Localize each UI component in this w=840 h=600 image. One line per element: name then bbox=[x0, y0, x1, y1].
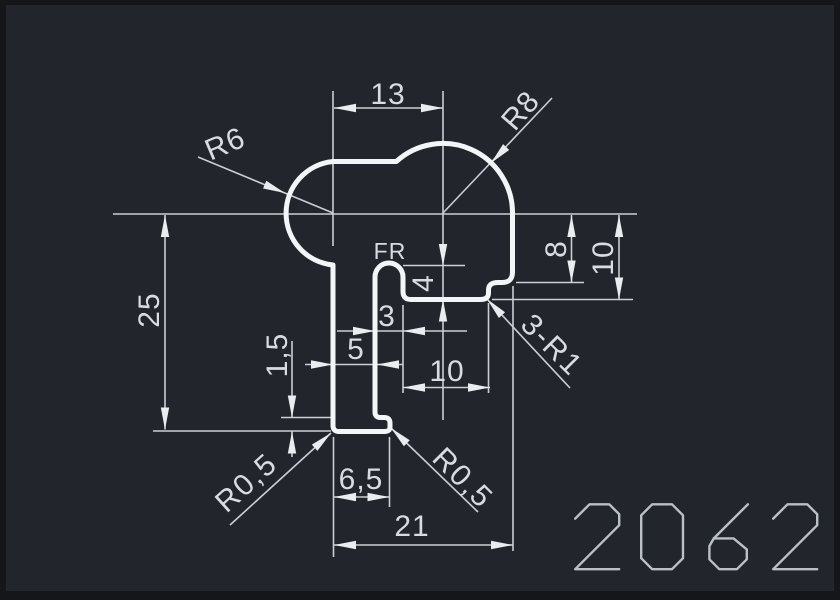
cad-viewport[interactable]: 13 R6 R8 4 3 5 10 bbox=[0, 0, 840, 600]
dim-label-21: 21 bbox=[394, 510, 429, 543]
dim-label-25: 25 bbox=[133, 292, 166, 327]
dim-label-10-notch: 10 bbox=[429, 355, 464, 388]
dim-label-13: 13 bbox=[370, 78, 405, 111]
dim-label-1-5: 1,5 bbox=[261, 333, 294, 378]
dim-label-4: 4 bbox=[407, 274, 440, 292]
dim-label-8: 8 bbox=[540, 240, 573, 258]
cad-drawing[interactable]: 13 R6 R8 4 3 5 10 bbox=[0, 0, 840, 600]
dim-label-10-step: 10 bbox=[587, 240, 620, 275]
dim-label-6-5: 6,5 bbox=[339, 463, 384, 496]
dim-label-5: 5 bbox=[347, 333, 365, 366]
dim-foot-width: 6,5 bbox=[334, 463, 390, 501]
dim-label-3: 3 bbox=[378, 300, 396, 333]
surface-label-fr: FR bbox=[374, 238, 407, 264]
